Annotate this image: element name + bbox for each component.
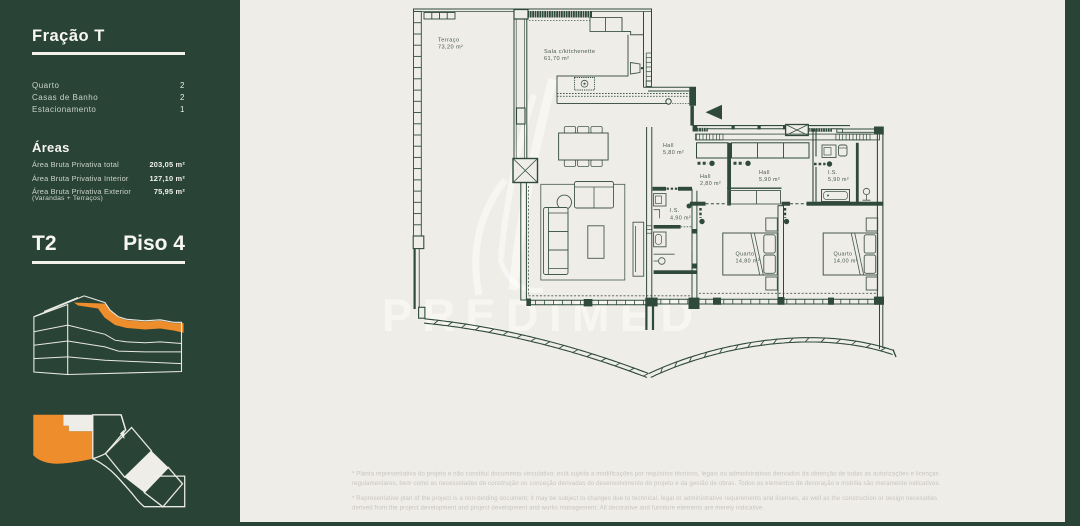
svg-text:Hall: Hall xyxy=(700,174,711,180)
svg-text:14,00 m²: 14,00 m² xyxy=(834,259,858,265)
svg-text:Hall: Hall xyxy=(663,143,674,149)
svg-text:Quarto: Quarto xyxy=(736,252,755,258)
svg-text:5,90 m²: 5,90 m² xyxy=(759,177,780,183)
svg-text:Hall: Hall xyxy=(759,170,770,176)
svg-text:Sala c/kitchenette: Sala c/kitchenette xyxy=(544,49,595,55)
svg-text:61,70 m²: 61,70 m² xyxy=(544,56,569,62)
svg-text:I.S.: I.S. xyxy=(828,170,838,176)
svg-text:2,80 m²: 2,80 m² xyxy=(700,181,721,187)
svg-text:Terraço: Terraço xyxy=(438,38,459,44)
svg-text:Quarto: Quarto xyxy=(834,252,853,258)
svg-text:4,90 m²: 4,90 m² xyxy=(670,216,691,222)
svg-text:73,20 m²: 73,20 m² xyxy=(438,45,463,51)
svg-text:5,90 m²: 5,90 m² xyxy=(828,177,849,183)
svg-text:14,80 m²: 14,80 m² xyxy=(736,259,760,265)
svg-text:5,80 m²: 5,80 m² xyxy=(663,150,684,156)
svg-text:I.S.: I.S. xyxy=(670,208,680,214)
